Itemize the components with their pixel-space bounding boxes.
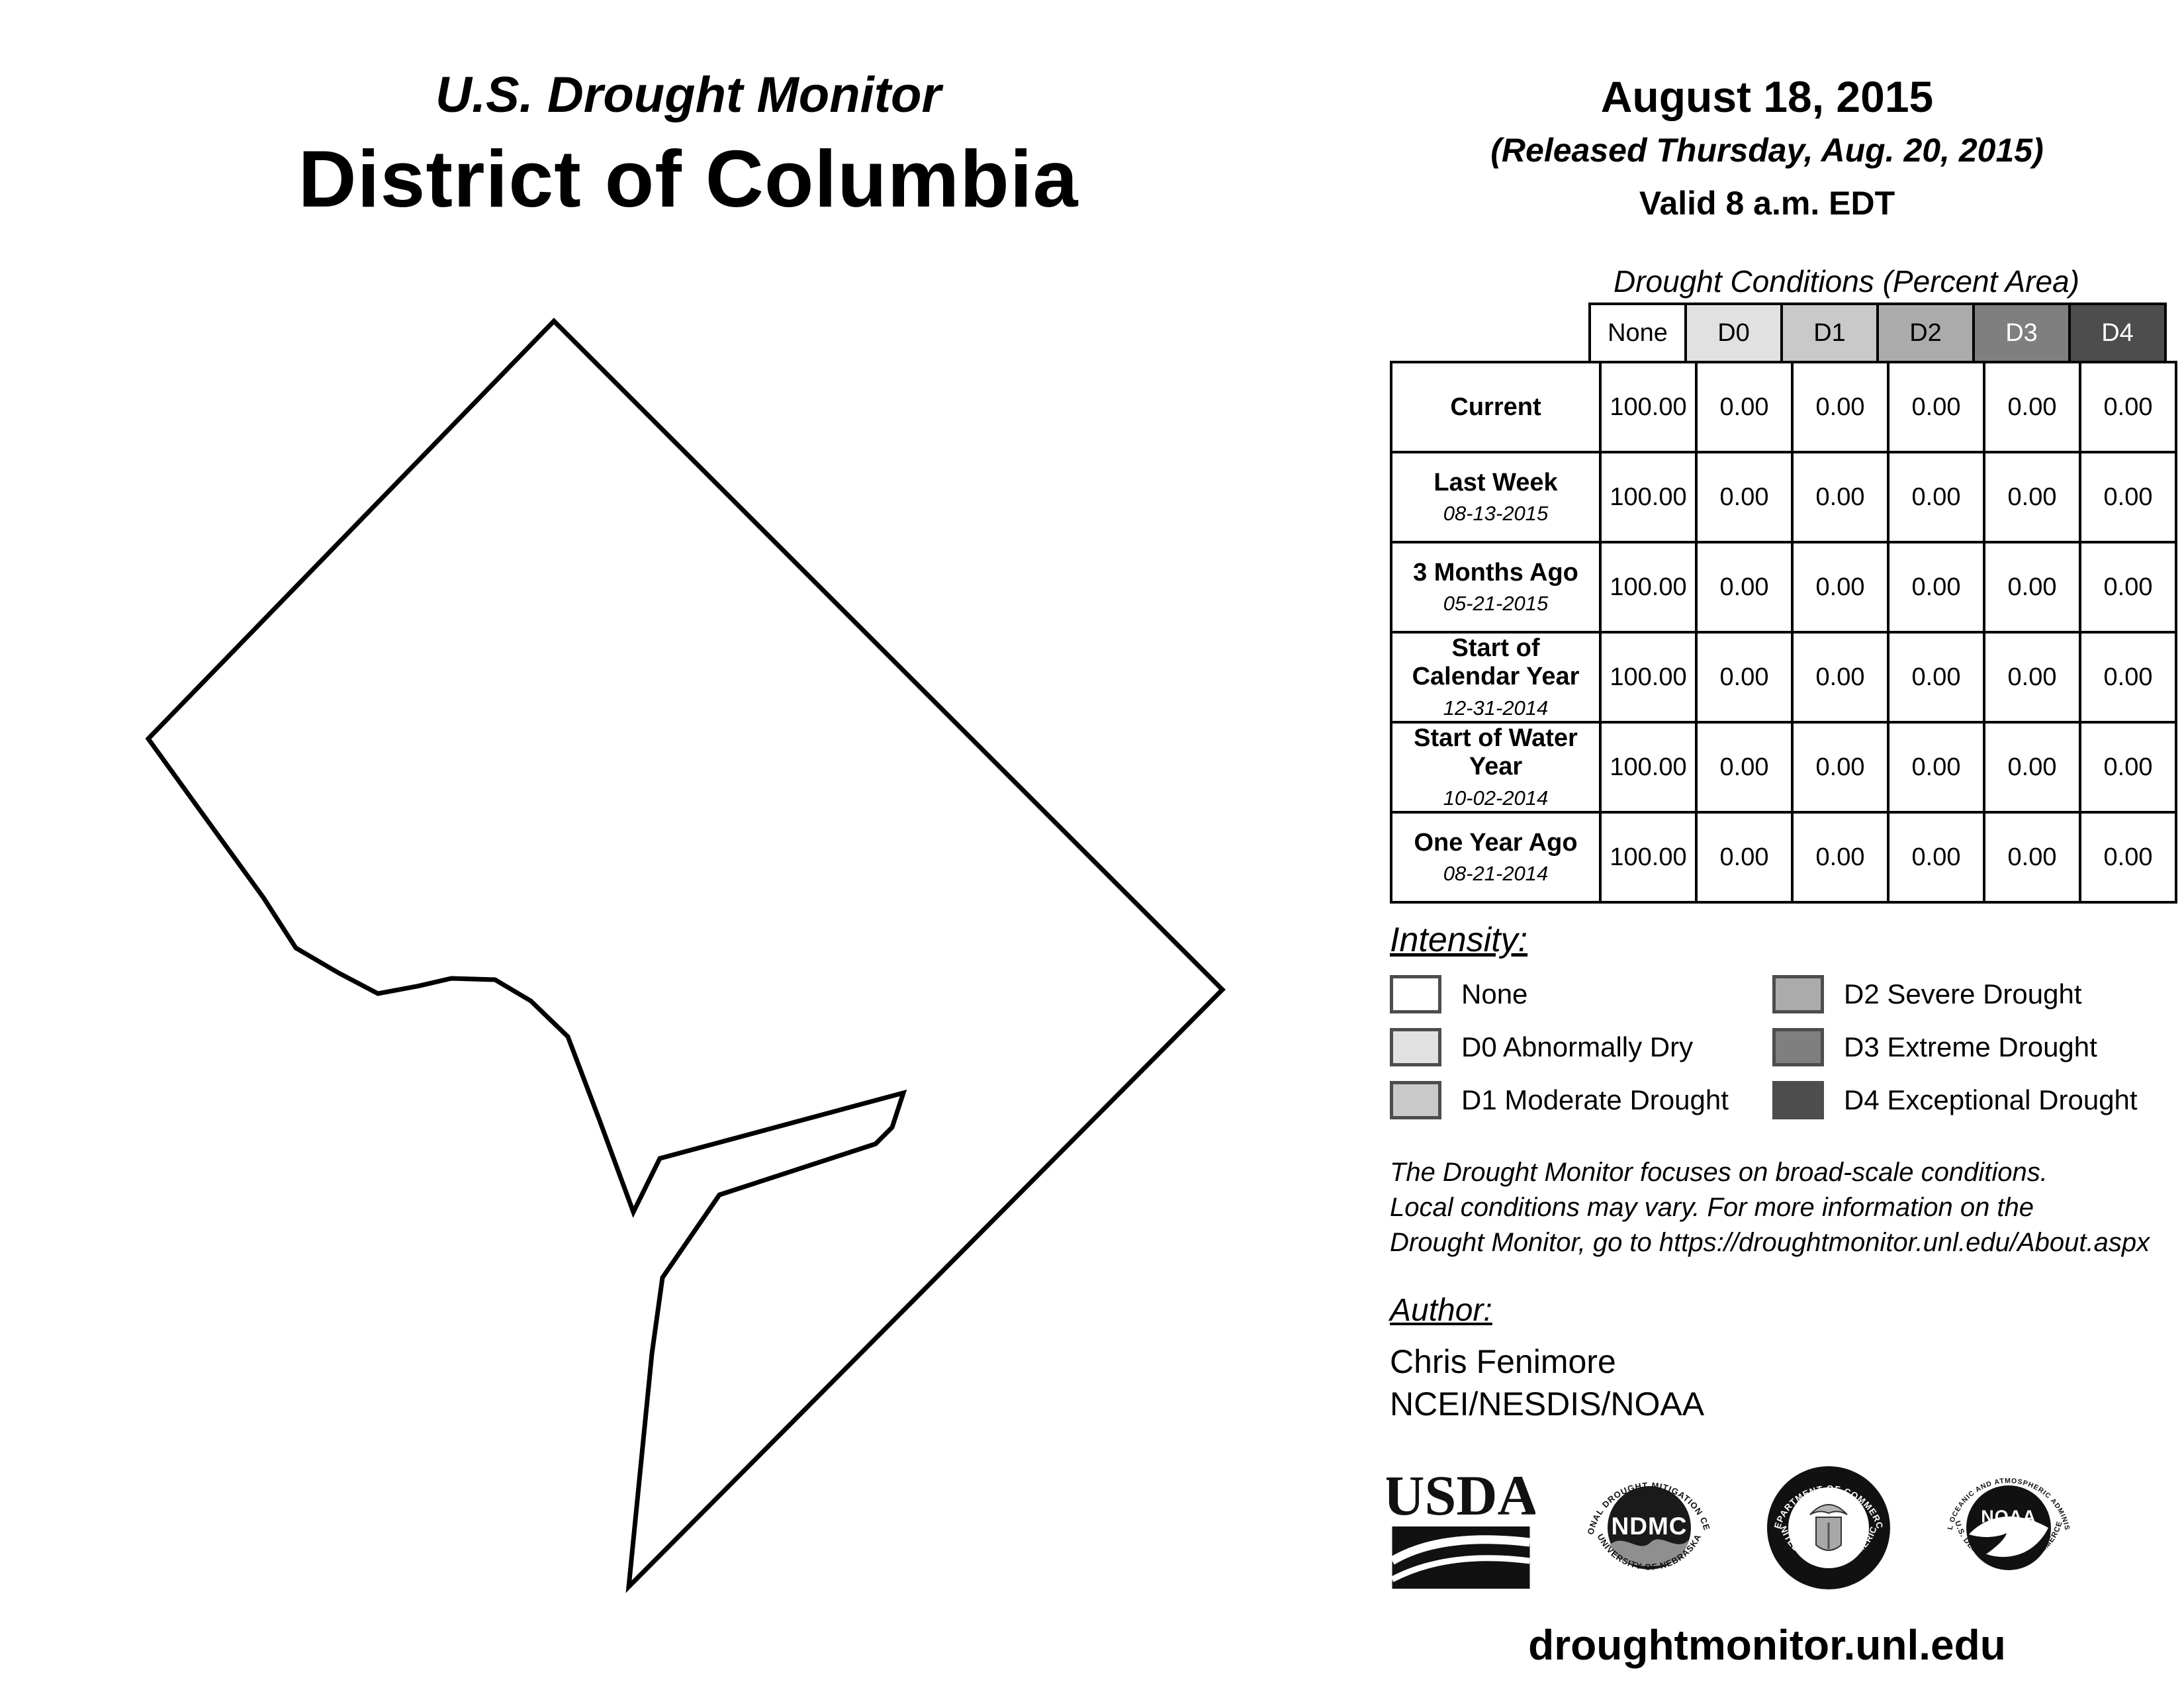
cell-value: 0.00 (1792, 812, 1888, 902)
row-label: 3 Months Ago (1396, 559, 1595, 587)
col-header-d0: D0 (1686, 304, 1782, 362)
col-header-d3: D3 (1974, 304, 2070, 362)
intensity-heading: Intensity: (1390, 920, 1527, 960)
cell-value: 0.00 (1888, 722, 1984, 812)
legend-label: D4 Exceptional Drought (1844, 1084, 2138, 1116)
cell-value: 0.00 (1888, 362, 1984, 452)
legend-label: D2 Severe Drought (1844, 978, 2082, 1010)
legend-swatch-d0 (1390, 1028, 1441, 1066)
cell-value: 0.00 (1696, 722, 1792, 812)
cell-value: 0.00 (1984, 362, 2080, 452)
cell-value: 0.00 (1984, 632, 2080, 722)
legend-swatch-d3 (1772, 1028, 1824, 1066)
cell-value: 100.00 (1600, 362, 1696, 452)
legend-label: None (1461, 978, 1527, 1010)
legend-swatch-d1 (1390, 1081, 1441, 1119)
usdm-report-page: { "header": { "title": "U.S. Drought Mon… (0, 0, 2184, 1688)
cell-value: 0.00 (1984, 722, 2080, 812)
row-label: Start of Water Year (1396, 724, 1595, 780)
legend-swatch-d2 (1772, 975, 1824, 1013)
cell-value: 0.00 (1792, 362, 1888, 452)
cell-value: 0.00 (1984, 452, 2080, 542)
agency-logos: USDA NDMC NATIONAL DROUGHT MITIGATION CE… (1387, 1456, 2075, 1599)
row-label: Current (1396, 393, 1595, 422)
cell-value: 0.00 (2080, 812, 2176, 902)
cell-value: 0.00 (1696, 542, 1792, 632)
cell-value: 0.00 (1888, 452, 1984, 542)
legend-swatch-none (1390, 975, 1441, 1013)
col-header-d1: D1 (1782, 304, 1878, 362)
date-block: August 18, 2015 (Released Thursday, Aug.… (1390, 71, 2144, 222)
legend-item-none: None (1390, 968, 1772, 1021)
legend-item-d2: D2 Severe Drought (1772, 968, 2158, 1021)
usda-logo-text: USDA (1387, 1464, 1535, 1527)
ndmc-logo-text: NDMC (1611, 1513, 1687, 1540)
col-header-none: None (1590, 304, 1686, 362)
table-row: One Year Ago 08-21-2014 100.00 0.00 0.00… (1391, 812, 2176, 902)
cell-value: 0.00 (1984, 812, 2080, 902)
table-title: Drought Conditions (Percent Area) (1549, 263, 2144, 299)
cell-value: 0.00 (1792, 722, 1888, 812)
legend-label: D0 Abnormally Dry (1461, 1031, 1693, 1063)
cell-value: 0.00 (2080, 722, 2176, 812)
disclaimer-line: Drought Monitor, go to https://droughtmo… (1390, 1225, 2177, 1260)
table-row: Current 100.00 0.00 0.00 0.00 0.00 0.00 (1391, 362, 2176, 452)
disclaimer-line: The Drought Monitor focuses on broad-sca… (1390, 1155, 2177, 1190)
cell-value: 0.00 (1696, 632, 1792, 722)
usda-logo: USDA (1387, 1462, 1535, 1594)
cell-value: 100.00 (1600, 632, 1696, 722)
cell-value: 0.00 (1888, 632, 1984, 722)
legend-label: D3 Extreme Drought (1844, 1031, 2097, 1063)
drought-table-header: None D0 D1 D2 D3 D4 (1588, 303, 2167, 363)
table-row: Start of Calendar Year 12-31-2014 100.00… (1391, 632, 2176, 722)
cell-value: 0.00 (2080, 362, 2176, 452)
author-org: NCEI/NESDIS/NOAA (1390, 1385, 1704, 1423)
legend-item-d3: D3 Extreme Drought (1772, 1021, 2158, 1074)
disclaimer-line: Local conditions may vary. For more info… (1390, 1190, 2177, 1225)
footer-url: droughtmonitor.unl.edu (1390, 1620, 2144, 1669)
dc-boundary-map (0, 0, 1324, 1688)
legend-swatch-d4 (1772, 1081, 1824, 1119)
author-heading: Author: (1390, 1292, 1492, 1329)
cell-value: 0.00 (1888, 542, 1984, 632)
intensity-legend: None D2 Severe Drought D0 Abnormally Dry… (1390, 968, 2158, 1127)
legend-item-d1: D1 Moderate Drought (1390, 1074, 1772, 1127)
legend-item-d0: D0 Abnormally Dry (1390, 1021, 1772, 1074)
cell-value: 100.00 (1600, 542, 1696, 632)
release-date: (Released Thursday, Aug. 20, 2015) (1390, 131, 2144, 169)
cell-value: 0.00 (1792, 452, 1888, 542)
cell-value: 0.00 (2080, 452, 2176, 542)
row-date: 08-21-2014 (1396, 862, 1595, 886)
row-label: One Year Ago (1396, 829, 1595, 857)
cell-value: 0.00 (1792, 632, 1888, 722)
noaa-logo: NOAA NATIONAL OCEANIC AND ATMOSPHERIC AD… (1942, 1462, 2075, 1594)
row-date: 05-21-2015 (1396, 592, 1595, 616)
row-date: 08-13-2015 (1396, 502, 1595, 526)
table-row: 3 Months Ago 05-21-2015 100.00 0.00 0.00… (1391, 542, 2176, 632)
noaa-logo-text: NOAA (1981, 1507, 2036, 1526)
valid-time: Valid 8 a.m. EDT (1390, 184, 2144, 222)
cell-value: 0.00 (1888, 812, 1984, 902)
col-header-d2: D2 (1878, 304, 1974, 362)
cell-value: 100.00 (1600, 812, 1696, 902)
row-date: 10-02-2014 (1396, 786, 1595, 810)
cell-value: 0.00 (2080, 632, 2176, 722)
disclaimer-text: The Drought Monitor focuses on broad-sca… (1390, 1155, 2177, 1261)
col-header-d4: D4 (2070, 304, 2165, 362)
commerce-seal-logo: DEPARTMENT OF COMMERCE UNITED STATES OF … (1762, 1462, 1895, 1594)
dc-boundary-outline (148, 321, 1222, 1587)
legend-label: D1 Moderate Drought (1461, 1084, 1729, 1116)
row-date: 12-31-2014 (1396, 696, 1595, 720)
cell-value: 100.00 (1600, 452, 1696, 542)
drought-table: Current 100.00 0.00 0.00 0.00 0.00 0.00 … (1390, 361, 2177, 904)
author-name: Chris Fenimore (1390, 1342, 1616, 1381)
region-title: District of Columbia (199, 132, 1178, 225)
report-title: U.S. Drought Monitor (265, 66, 1112, 124)
cell-value: 0.00 (1696, 452, 1792, 542)
cell-value: 100.00 (1600, 722, 1696, 812)
cell-value: 0.00 (1696, 812, 1792, 902)
table-row: Last Week 08-13-2015 100.00 0.00 0.00 0.… (1391, 452, 2176, 542)
cell-value: 0.00 (1696, 362, 1792, 452)
cell-value: 0.00 (1792, 542, 1888, 632)
row-label: Last Week (1396, 469, 1595, 497)
legend-item-d4: D4 Exceptional Drought (1772, 1074, 2158, 1127)
ndmc-logo: NDMC NATIONAL DROUGHT MITIGATION CENTER … (1583, 1462, 1715, 1594)
table-row: Start of Water Year 10-02-2014 100.00 0.… (1391, 722, 2176, 812)
cell-value: 0.00 (1984, 542, 2080, 632)
cell-value: 0.00 (2080, 542, 2176, 632)
row-label: Start of Calendar Year (1396, 634, 1595, 690)
map-date: August 18, 2015 (1390, 71, 2144, 122)
